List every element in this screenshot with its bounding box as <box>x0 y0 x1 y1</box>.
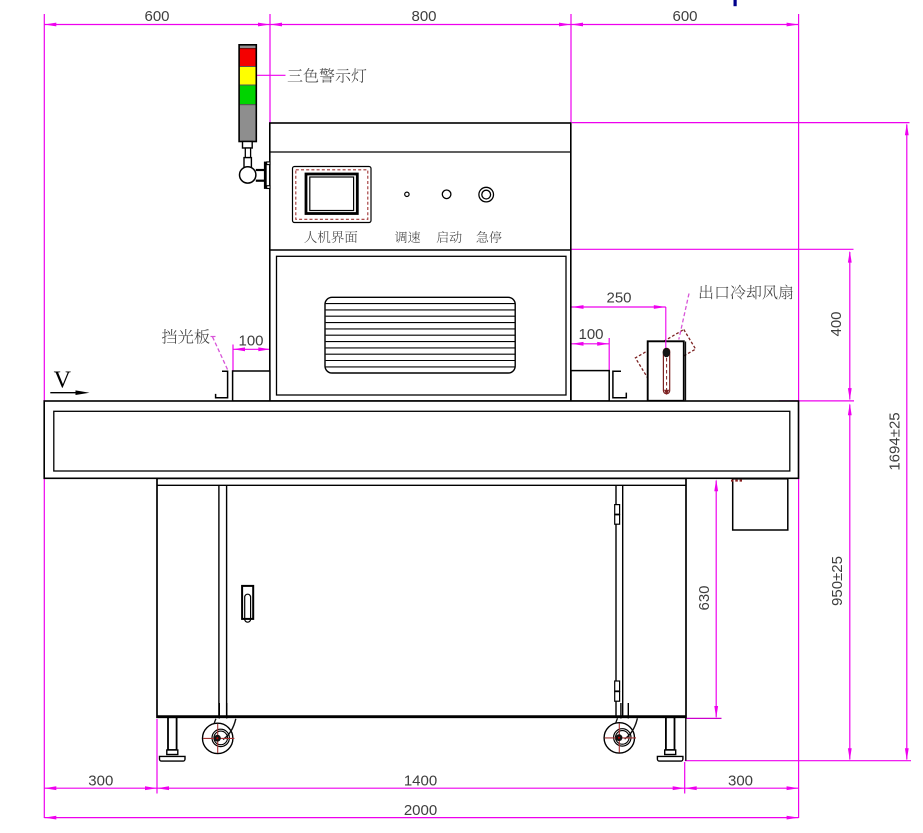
svg-text:950±25: 950±25 <box>829 556 846 606</box>
svg-text:800: 800 <box>411 8 436 25</box>
svg-text:300: 300 <box>88 772 113 789</box>
svg-text:630: 630 <box>696 585 713 610</box>
svg-text:600: 600 <box>672 8 697 25</box>
svg-text:300: 300 <box>728 772 753 789</box>
svg-text:100: 100 <box>238 332 263 349</box>
svg-text:1694±25: 1694±25 <box>887 412 904 470</box>
svg-text:100: 100 <box>578 326 603 343</box>
svg-text:1400: 1400 <box>404 772 437 789</box>
svg-text:600: 600 <box>144 8 169 25</box>
svg-text:250: 250 <box>606 289 631 306</box>
svg-text:2000: 2000 <box>404 802 437 819</box>
svg-text:V: V <box>54 368 72 394</box>
svg-text:400: 400 <box>828 311 845 336</box>
